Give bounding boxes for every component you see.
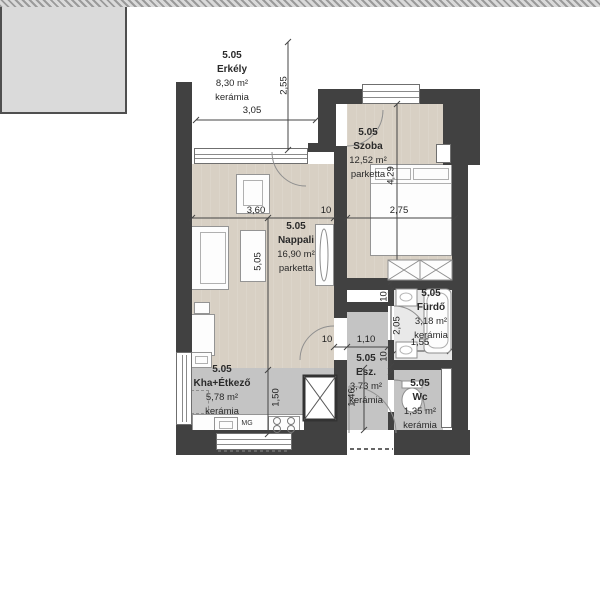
room-id: 5.05 xyxy=(328,352,404,366)
dim-szoba-depth: 4,29 xyxy=(386,154,397,198)
room-name: Wc xyxy=(382,391,458,405)
room-name: Szoba xyxy=(323,140,413,154)
dim-esz-wall: 10 xyxy=(315,334,339,345)
room-id: 5.05 xyxy=(393,287,469,301)
room-name: Nappali xyxy=(251,234,341,248)
room-floor: kerámia xyxy=(382,419,458,433)
room-area: 5,78 m² xyxy=(177,391,267,405)
room-id: 5.05 xyxy=(323,126,413,140)
dim-nappali-depth: 5,05 xyxy=(253,240,264,284)
room-area: 16,90 m² xyxy=(251,248,341,262)
room-id: 5.05 xyxy=(382,377,458,391)
room-name: Kha+Étkező xyxy=(177,377,267,391)
room-id: 5.05 xyxy=(177,363,267,377)
dim-furdo-width: 1,55 xyxy=(398,337,442,348)
label-wc: 5.05 Wc 1,35 m² kerámia xyxy=(382,377,458,433)
dim-wall-a: 10 xyxy=(314,205,338,216)
dim-balcony-width: 3,05 xyxy=(230,105,274,116)
floor-plan: 5.05 Erkély 8,30 m² kerámia 5.05 Szoba 1… xyxy=(0,0,600,603)
dim-szoba-width: 2,75 xyxy=(377,205,421,216)
plan-linework xyxy=(0,0,600,603)
label-nappali: 5.05 Nappali 16,90 m² parketta xyxy=(251,220,341,276)
label-erkely: 5.05 Erkély 8,30 m² kerámia xyxy=(187,49,277,105)
room-floor: kerámia xyxy=(187,91,277,105)
room-name: Erkély xyxy=(187,63,277,77)
dim-esz-width: 1,10 xyxy=(344,334,388,345)
room-floor: parketta xyxy=(323,168,413,182)
room-floor: kerámia xyxy=(177,405,267,419)
room-area: 8,30 m² xyxy=(187,77,277,91)
label-kha-etkezo: 5.05 Kha+Étkező 5,78 m² kerámia xyxy=(177,363,267,419)
dim-kitchen-depth: 1,50 xyxy=(271,376,282,420)
room-floor: parketta xyxy=(251,262,341,276)
room-name: Fürdő xyxy=(393,301,469,315)
room-id: 5.05 xyxy=(251,220,341,234)
label-szoba: 5.05 Szoba 12,52 m² parketta xyxy=(323,126,413,182)
room-area: 12,52 m² xyxy=(323,154,413,168)
dim-wc-depth: 1,46 xyxy=(347,376,358,420)
dim-nappali-width: 3,60 xyxy=(234,205,278,216)
dim-furdo-wall-bottom: 10 xyxy=(379,345,390,369)
room-area: 3,18 m² xyxy=(393,315,469,329)
stove-burners-icon xyxy=(274,418,295,433)
dim-furdo-wall-top: 10 xyxy=(379,285,390,309)
microwave-label: MG xyxy=(238,420,256,427)
room-id: 5.05 xyxy=(187,49,277,63)
dim-balcony-depth: 2,55 xyxy=(279,64,290,108)
label-furdo: 5.05 Fürdő 3,18 m² kerámia xyxy=(393,287,469,343)
wardrobe-icon xyxy=(388,260,452,280)
room-area: 1,35 m² xyxy=(382,405,458,419)
